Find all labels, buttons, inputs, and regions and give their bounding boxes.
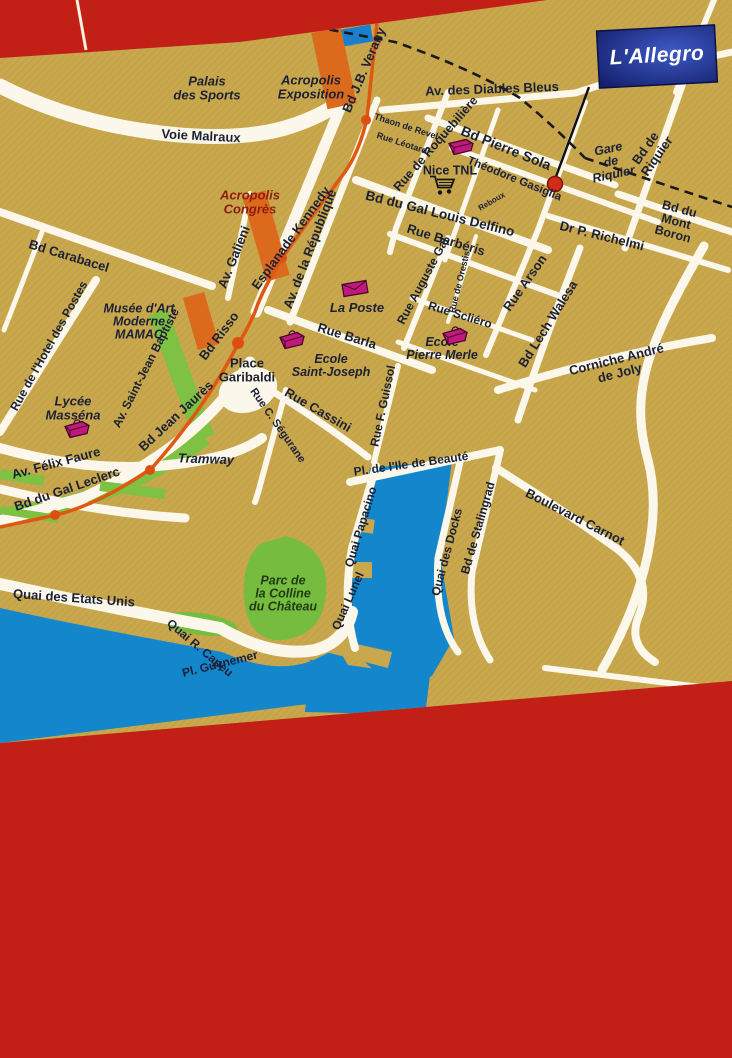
map-layer [0,0,732,745]
footer: L'A LLEGRO 27-29, rue Théodore Gasiglia … [0,745,732,1058]
flyer-page: Voie MalrauxAv. des Diables BleusBd Pier… [0,0,732,1058]
allegro-flag-label: L'Allegro [609,42,705,71]
